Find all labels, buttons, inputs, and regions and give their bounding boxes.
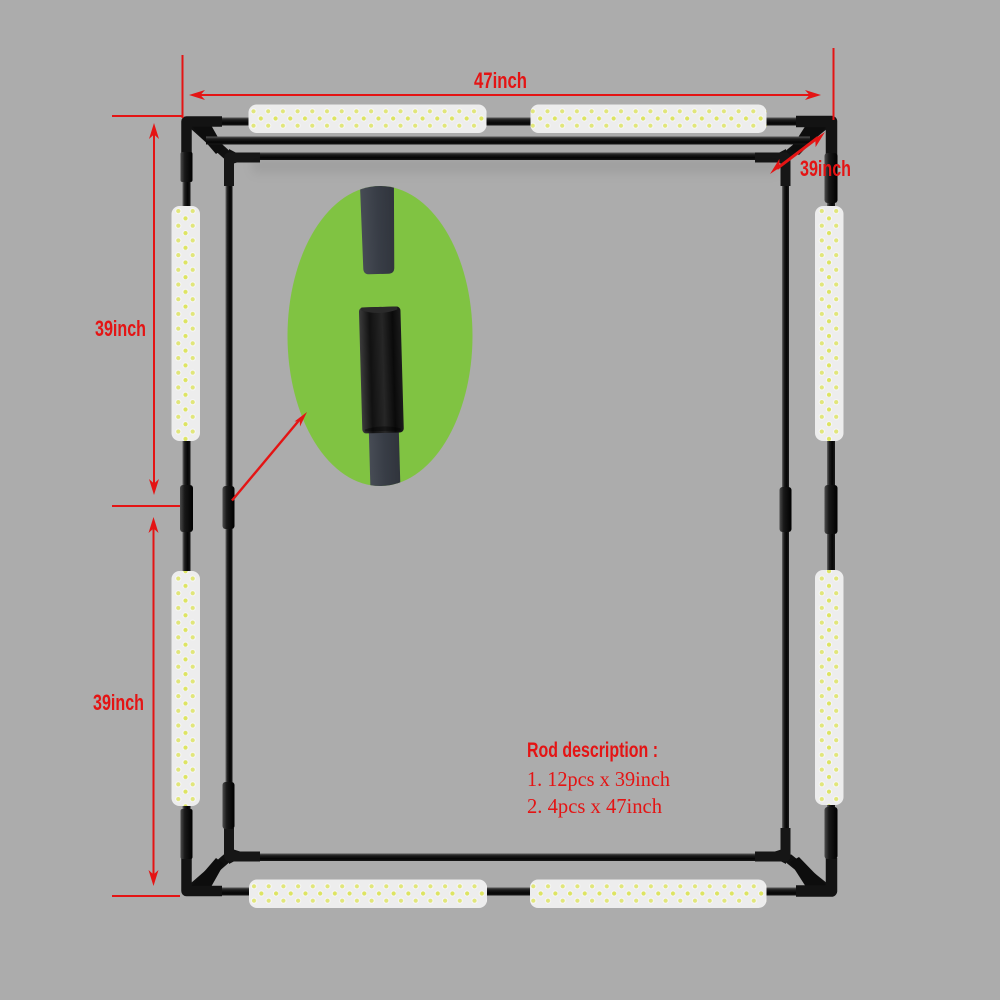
svg-text:39inch: 39inch [95, 316, 146, 341]
svg-text:39inch: 39inch [800, 156, 851, 181]
svg-text:47inch: 47inch [474, 68, 527, 93]
svg-text:Rod description :: Rod description : [527, 739, 658, 762]
svg-text:2. 4pcs x 47inch: 2. 4pcs x 47inch [527, 794, 662, 818]
svg-text:1. 12pcs x 39inch: 1. 12pcs x 39inch [527, 767, 670, 791]
svg-text:39inch: 39inch [93, 690, 144, 715]
